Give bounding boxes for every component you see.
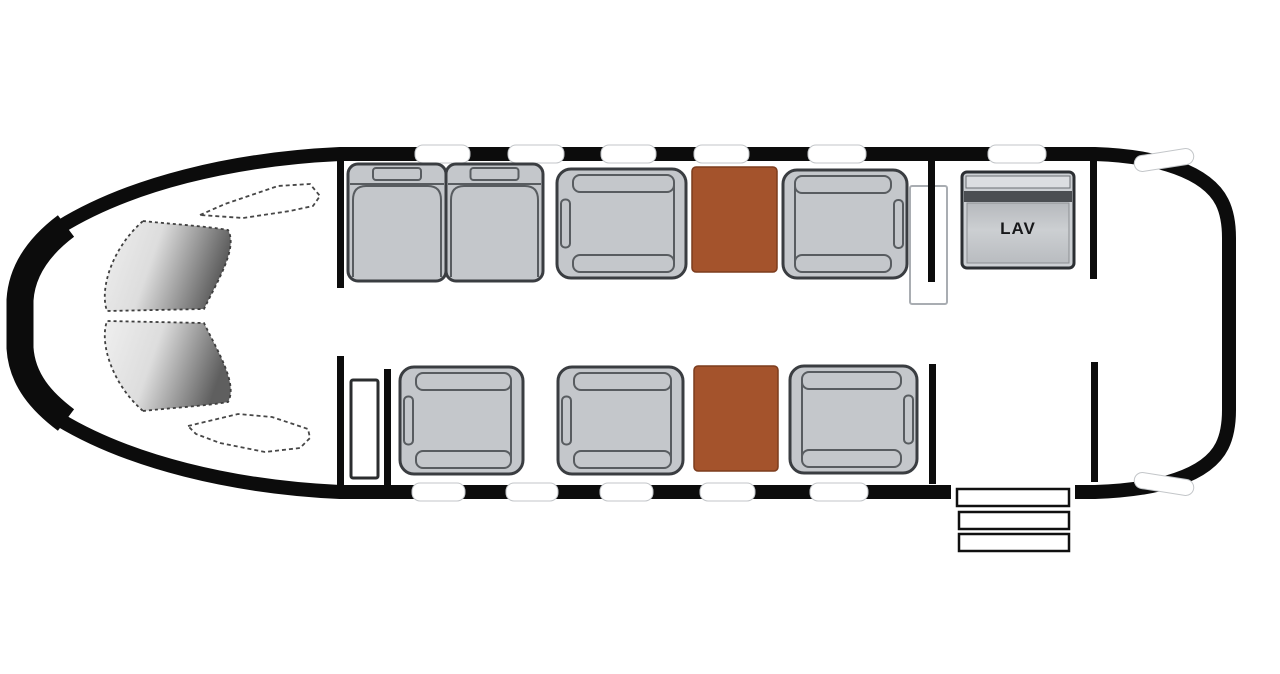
cabin-window	[808, 145, 866, 163]
club-seat-1-bottom	[400, 367, 523, 474]
cabin-window	[810, 483, 868, 501]
cabin-window	[694, 145, 749, 163]
forward-closet	[351, 380, 378, 478]
conference-table	[694, 366, 778, 471]
club-seat-aft-top	[783, 170, 907, 278]
partition-wall	[1090, 159, 1097, 279]
partition-wall	[337, 158, 344, 288]
club-seat-2-bottom	[558, 367, 683, 474]
partition-wall	[337, 356, 344, 486]
club-seat-fwd-top	[557, 169, 686, 278]
aircraft-floorplan: LAV	[0, 0, 1280, 674]
lav-label: LAV	[1000, 219, 1036, 238]
cabin-window	[700, 483, 755, 501]
partition-wall	[384, 369, 391, 486]
cabin-window	[988, 145, 1046, 163]
partition-wall	[928, 158, 935, 282]
cabin-window	[415, 145, 470, 163]
cabin-window	[506, 483, 558, 501]
conference-table	[692, 167, 777, 272]
club-seat-aft-bottom	[790, 366, 917, 473]
airstair-step	[959, 534, 1069, 551]
partition-wall	[929, 364, 936, 484]
partition-wall	[1091, 362, 1098, 482]
cabin-window	[601, 145, 656, 163]
cabin-window	[600, 483, 653, 501]
cabin-window	[508, 145, 564, 163]
floorplan-canvas: LAV	[0, 0, 1280, 674]
divan-seat-2	[446, 164, 543, 281]
airstair-step	[957, 489, 1069, 506]
cabin-window	[412, 483, 465, 501]
airstair-step	[959, 512, 1069, 529]
divan-seat-1	[348, 164, 446, 281]
